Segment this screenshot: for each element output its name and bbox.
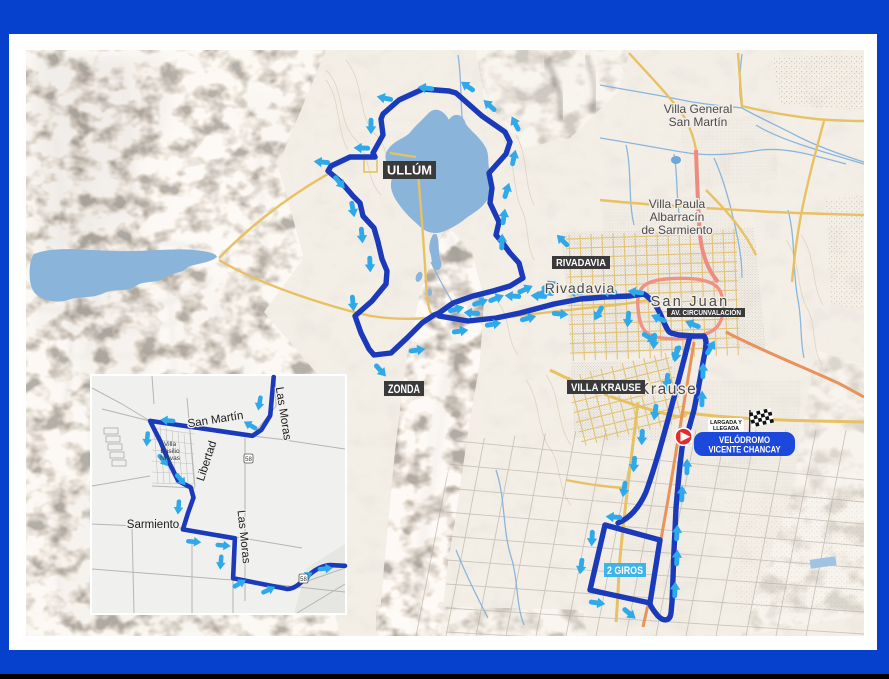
- svg-text:Basilio: Basilio: [160, 448, 180, 455]
- svg-text:Villa: Villa: [164, 441, 177, 448]
- svg-text:2 GIROS: 2 GIROS: [607, 565, 643, 577]
- svg-text:Albarracín: Albarracín: [650, 210, 705, 224]
- svg-text:58: 58: [300, 577, 307, 583]
- svg-text:58: 58: [245, 457, 252, 463]
- svg-text:LLEGADA: LLEGADA: [713, 426, 739, 432]
- svg-text:Villa General: Villa General: [664, 102, 732, 116]
- svg-text:ZONDA: ZONDA: [388, 382, 420, 396]
- svg-text:Villa Paula: Villa Paula: [649, 197, 706, 211]
- svg-text:Rivadavia: Rivadavia: [545, 280, 615, 296]
- svg-text:VELÓDROMO: VELÓDROMO: [719, 434, 770, 445]
- svg-text:VILLA KRAUSE: VILLA KRAUSE: [571, 382, 641, 394]
- svg-text:VICENTE CHANCAY: VICENTE CHANCAY: [709, 444, 781, 454]
- svg-text:San Juan: San Juan: [651, 294, 730, 310]
- svg-text:ULLÚM: ULLÚM: [387, 163, 432, 178]
- svg-text:de Sarmiento: de Sarmiento: [641, 223, 713, 237]
- svg-text:Nievas: Nievas: [160, 455, 181, 462]
- svg-text:RIVADAVIA: RIVADAVIA: [556, 258, 606, 269]
- svg-text:San Martín: San Martín: [669, 115, 728, 129]
- svg-text:Sarmiento: Sarmiento: [127, 519, 179, 531]
- svg-text:AV. CIRCUNVALACIÓN: AV. CIRCUNVALACIÓN: [671, 308, 741, 317]
